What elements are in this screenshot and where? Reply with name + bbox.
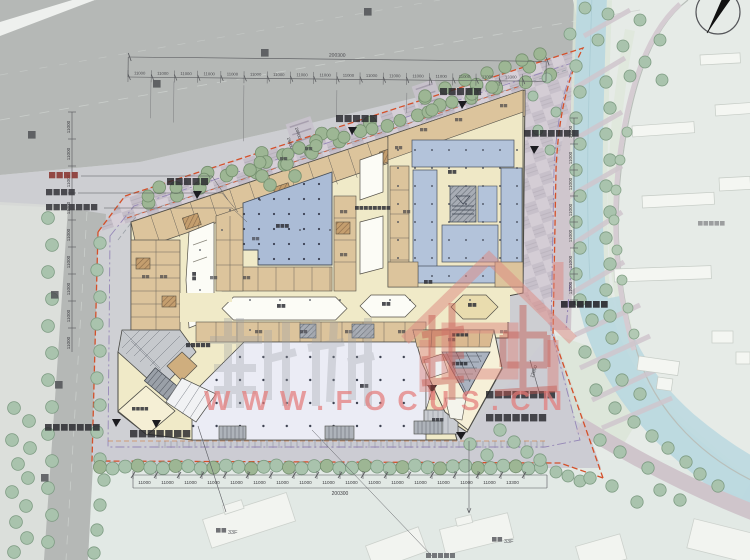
svg-text:11000: 11000 bbox=[184, 480, 197, 485]
svg-text:11000: 11000 bbox=[180, 71, 192, 76]
svg-text:11000: 11000 bbox=[207, 480, 220, 485]
svg-text:11000: 11000 bbox=[368, 480, 381, 485]
svg-text:11000: 11000 bbox=[568, 281, 573, 294]
svg-text:11000: 11000 bbox=[157, 71, 169, 76]
svg-text:11000: 11000 bbox=[568, 255, 573, 268]
svg-text:11000: 11000 bbox=[66, 228, 71, 241]
svg-text:11000: 11000 bbox=[138, 480, 151, 485]
svg-text:11000: 11000 bbox=[66, 336, 71, 349]
svg-text:11000: 11000 bbox=[345, 480, 358, 485]
svg-text:33F: 33F bbox=[228, 530, 238, 536]
svg-text:11000: 11000 bbox=[568, 229, 573, 242]
svg-text:13300: 13300 bbox=[506, 480, 519, 485]
svg-text:11000: 11000 bbox=[343, 73, 355, 78]
svg-text:11000: 11000 bbox=[66, 255, 71, 268]
svg-text:11000: 11000 bbox=[568, 203, 573, 216]
svg-text:11000: 11000 bbox=[436, 74, 448, 79]
svg-text:11000: 11000 bbox=[227, 72, 239, 77]
svg-text:11000: 11000 bbox=[482, 74, 494, 79]
svg-text:11000: 11000 bbox=[253, 480, 266, 485]
svg-text:11000: 11000 bbox=[391, 480, 404, 485]
svg-text:11000: 11000 bbox=[389, 73, 401, 78]
svg-text:13300: 13300 bbox=[505, 74, 517, 79]
svg-text:11000: 11000 bbox=[204, 71, 216, 76]
svg-text:11000: 11000 bbox=[568, 177, 573, 190]
svg-text:11000: 11000 bbox=[412, 73, 424, 78]
svg-text:200300: 200300 bbox=[332, 491, 349, 497]
svg-text:11000: 11000 bbox=[230, 480, 243, 485]
svg-text:11000: 11000 bbox=[134, 71, 146, 76]
svg-text:11000: 11000 bbox=[437, 480, 450, 485]
svg-text:11000: 11000 bbox=[459, 74, 471, 79]
svg-text:200300: 200300 bbox=[329, 53, 346, 59]
svg-text:11000: 11000 bbox=[276, 480, 289, 485]
svg-text:11000: 11000 bbox=[66, 147, 71, 160]
svg-text:11000: 11000 bbox=[366, 73, 378, 78]
svg-text:11000: 11000 bbox=[460, 480, 473, 485]
svg-text:11000: 11000 bbox=[161, 480, 174, 485]
svg-text:11000: 11000 bbox=[322, 480, 335, 485]
svg-text:11000: 11000 bbox=[414, 480, 427, 485]
svg-text:11000: 11000 bbox=[66, 282, 71, 295]
svg-text:11000: 11000 bbox=[483, 480, 496, 485]
svg-text:11000: 11000 bbox=[250, 72, 262, 77]
svg-text:33F: 33F bbox=[504, 539, 514, 545]
svg-text:11000: 11000 bbox=[568, 151, 573, 164]
svg-text:11000: 11000 bbox=[66, 309, 71, 322]
svg-text:WWW.FOCUS.CN: WWW.FOCUS.CN bbox=[204, 385, 574, 416]
svg-text:11000: 11000 bbox=[66, 120, 71, 133]
svg-text:11000: 11000 bbox=[299, 480, 312, 485]
svg-text:11000: 11000 bbox=[273, 72, 285, 77]
svg-text:11000: 11000 bbox=[320, 73, 332, 78]
svg-text:11000: 11000 bbox=[296, 72, 308, 77]
